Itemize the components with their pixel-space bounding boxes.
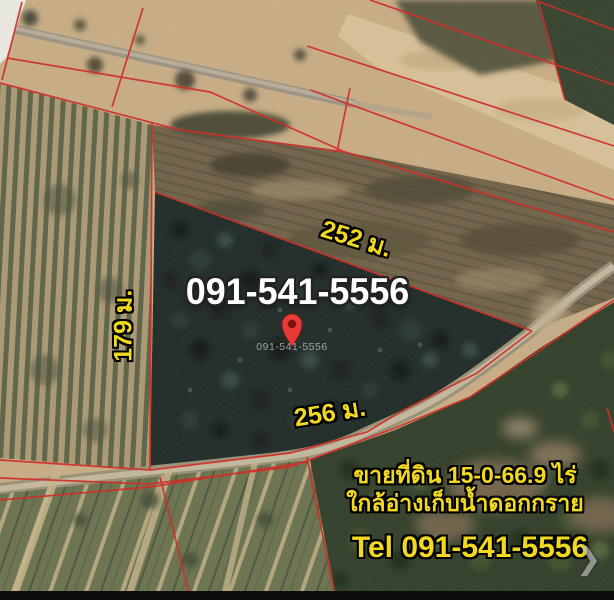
land-listing-image: 091-541-5556 252 ม. 179 ม. 256 ม. 091-54… <box>0 0 614 600</box>
bottom-bar <box>0 591 614 600</box>
phone-watermark-large: 091-541-5556 <box>174 272 421 313</box>
next-arrow-icon[interactable]: ❯ <box>576 543 601 576</box>
listing-tel-text: Tel 091-541-5556 <box>335 531 605 564</box>
measurement-left-edge: 179 ม. <box>110 268 138 384</box>
listing-area-text: ขายที่ดิน 15-0-66.9 ไร่ <box>335 463 595 488</box>
listing-location-text: ใกล้อ่างเก็บน้ำดอกกราย <box>335 491 595 516</box>
phone-watermark-small: 091-541-5556 <box>240 342 344 354</box>
